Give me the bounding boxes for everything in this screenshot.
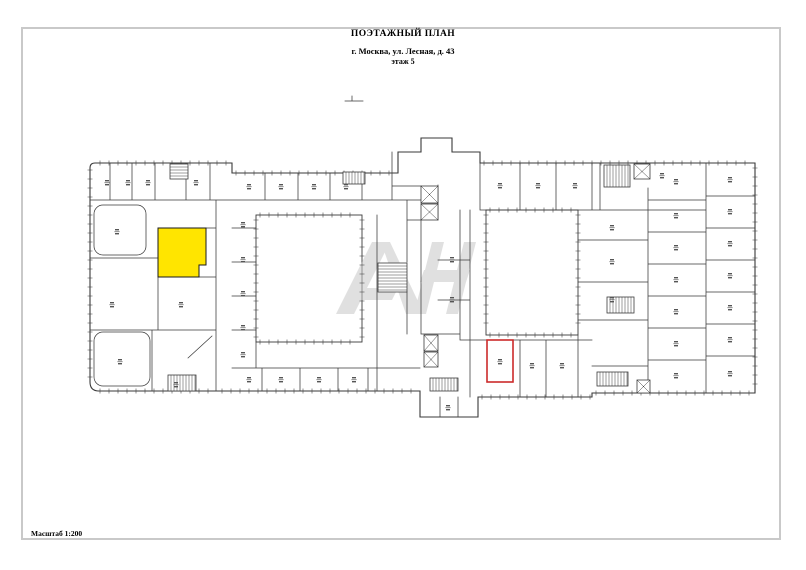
- courtyard-right: [486, 210, 578, 335]
- highlighted-room[interactable]: [158, 228, 206, 277]
- survey-mark: [345, 96, 363, 101]
- plan-sheet: ПОЭТАЖНЫЙ ПЛАН г. Москва, ул. Лесная, д.…: [0, 0, 806, 570]
- scale-label: Масштаб 1:200: [31, 529, 82, 538]
- courtyard-left: [256, 215, 362, 342]
- floor-plan-drawing: [0, 0, 806, 570]
